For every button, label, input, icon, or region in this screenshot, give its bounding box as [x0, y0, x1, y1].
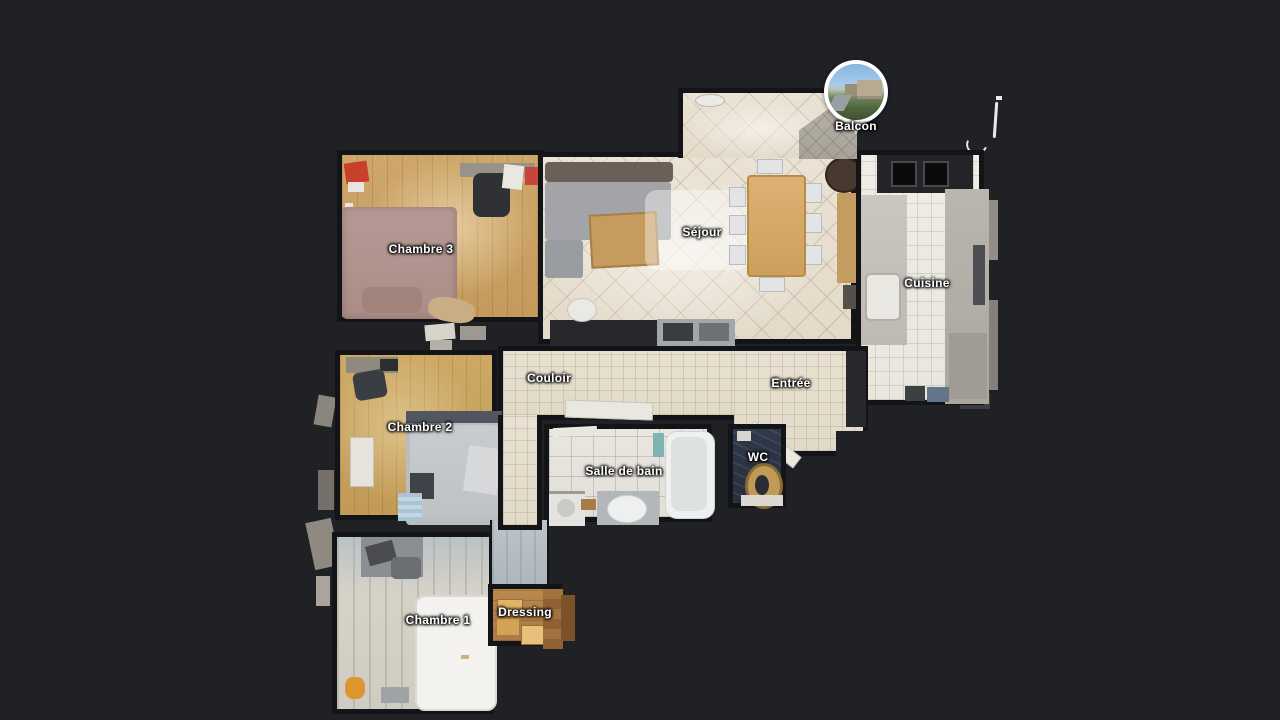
floorplan-viewport[interactable]: Chambre 3 Séjour Cuisine Couloir Entrée … [0, 0, 1280, 720]
desk-chair [352, 368, 388, 401]
mesh-artifact [430, 340, 452, 350]
sink [865, 273, 901, 321]
oven [973, 245, 985, 305]
floor-cushion [381, 687, 409, 703]
mesh-artifact [993, 102, 999, 138]
tv-buffet [550, 320, 657, 346]
floor-mat-blue [927, 387, 949, 402]
shelving-column [543, 589, 563, 649]
toilet-tank [741, 495, 783, 506]
room-label-chambre-2[interactable]: Chambre 2 [388, 420, 453, 434]
room-label-salle-de-bain[interactable]: Salle de bain [585, 464, 662, 478]
dish [695, 94, 725, 107]
bed-pillows [362, 287, 422, 313]
panorama-building [857, 80, 882, 99]
bag [426, 294, 476, 326]
cabinet-grey-panel [699, 323, 729, 341]
mesh-artifact [314, 395, 337, 428]
dining-chair [729, 215, 746, 235]
fridge [949, 333, 987, 399]
door-panel [553, 426, 597, 437]
dresser [350, 437, 374, 487]
room-label-wc[interactable]: WC [748, 450, 769, 464]
sofa-back-cushions [545, 162, 673, 182]
washer-door [557, 499, 575, 517]
sink [607, 495, 647, 523]
room-label-chambre-1[interactable]: Chambre 1 [406, 613, 471, 627]
bathtub-basin [671, 437, 707, 511]
mesh-artifact [318, 470, 334, 510]
wardrobe-edge [561, 595, 575, 641]
mesh-artifact [996, 96, 1002, 100]
room-chambre-2[interactable] [335, 350, 497, 520]
room-label-dressing[interactable]: Dressing [498, 605, 552, 619]
red-cushion [344, 161, 370, 185]
room-sejour[interactable] [538, 152, 856, 344]
pin-label-balcon[interactable]: Balcon [835, 119, 877, 133]
dining-table [747, 175, 806, 277]
mattress-stain [461, 655, 469, 659]
room-label-chambre-3[interactable]: Chambre 3 [389, 242, 454, 256]
mesh-artifact [460, 326, 486, 340]
toilet-bowl [755, 475, 769, 495]
dining-chair [729, 245, 746, 265]
mesh-artifact [424, 323, 455, 342]
white-object [348, 182, 364, 192]
shelf-item [737, 431, 751, 441]
orange-stool [345, 677, 365, 699]
storage-basket [398, 493, 422, 521]
desk-chair [391, 557, 421, 579]
door-panel [565, 399, 654, 420]
floor-cutout [836, 431, 868, 461]
dining-chair [757, 159, 783, 174]
sofa-chaise [545, 240, 583, 278]
paper-sheet [502, 164, 524, 190]
dining-chair [805, 213, 822, 233]
kitchen-counter-left [861, 195, 907, 345]
cabinet-dark-panel [663, 323, 693, 341]
dining-chair [805, 183, 822, 203]
room-label-entree[interactable]: Entrée [771, 376, 810, 390]
towel [653, 433, 664, 457]
room-label-cuisine[interactable]: Cuisine [904, 276, 949, 290]
dining-chair [805, 245, 822, 265]
couloir-branch[interactable] [498, 415, 542, 530]
red-folder [525, 167, 538, 185]
shelf-box [497, 619, 519, 635]
mesh-artifact [316, 576, 330, 606]
burner [891, 161, 917, 187]
wall-shadow [846, 351, 866, 427]
room-label-sejour[interactable]: Séjour [682, 225, 721, 239]
dining-chair [759, 277, 785, 292]
room-wc[interactable] [728, 424, 786, 508]
monitor [380, 359, 398, 371]
room-chambre-3[interactable] [337, 150, 545, 322]
floor-mat-dark [905, 386, 925, 401]
panorama-photo-pin-icon[interactable] [824, 60, 888, 124]
burner [923, 161, 949, 187]
dining-chair [729, 187, 746, 207]
bowl [567, 298, 597, 322]
wood-tray [581, 499, 596, 510]
room-label-couloir[interactable]: Couloir [527, 371, 571, 385]
